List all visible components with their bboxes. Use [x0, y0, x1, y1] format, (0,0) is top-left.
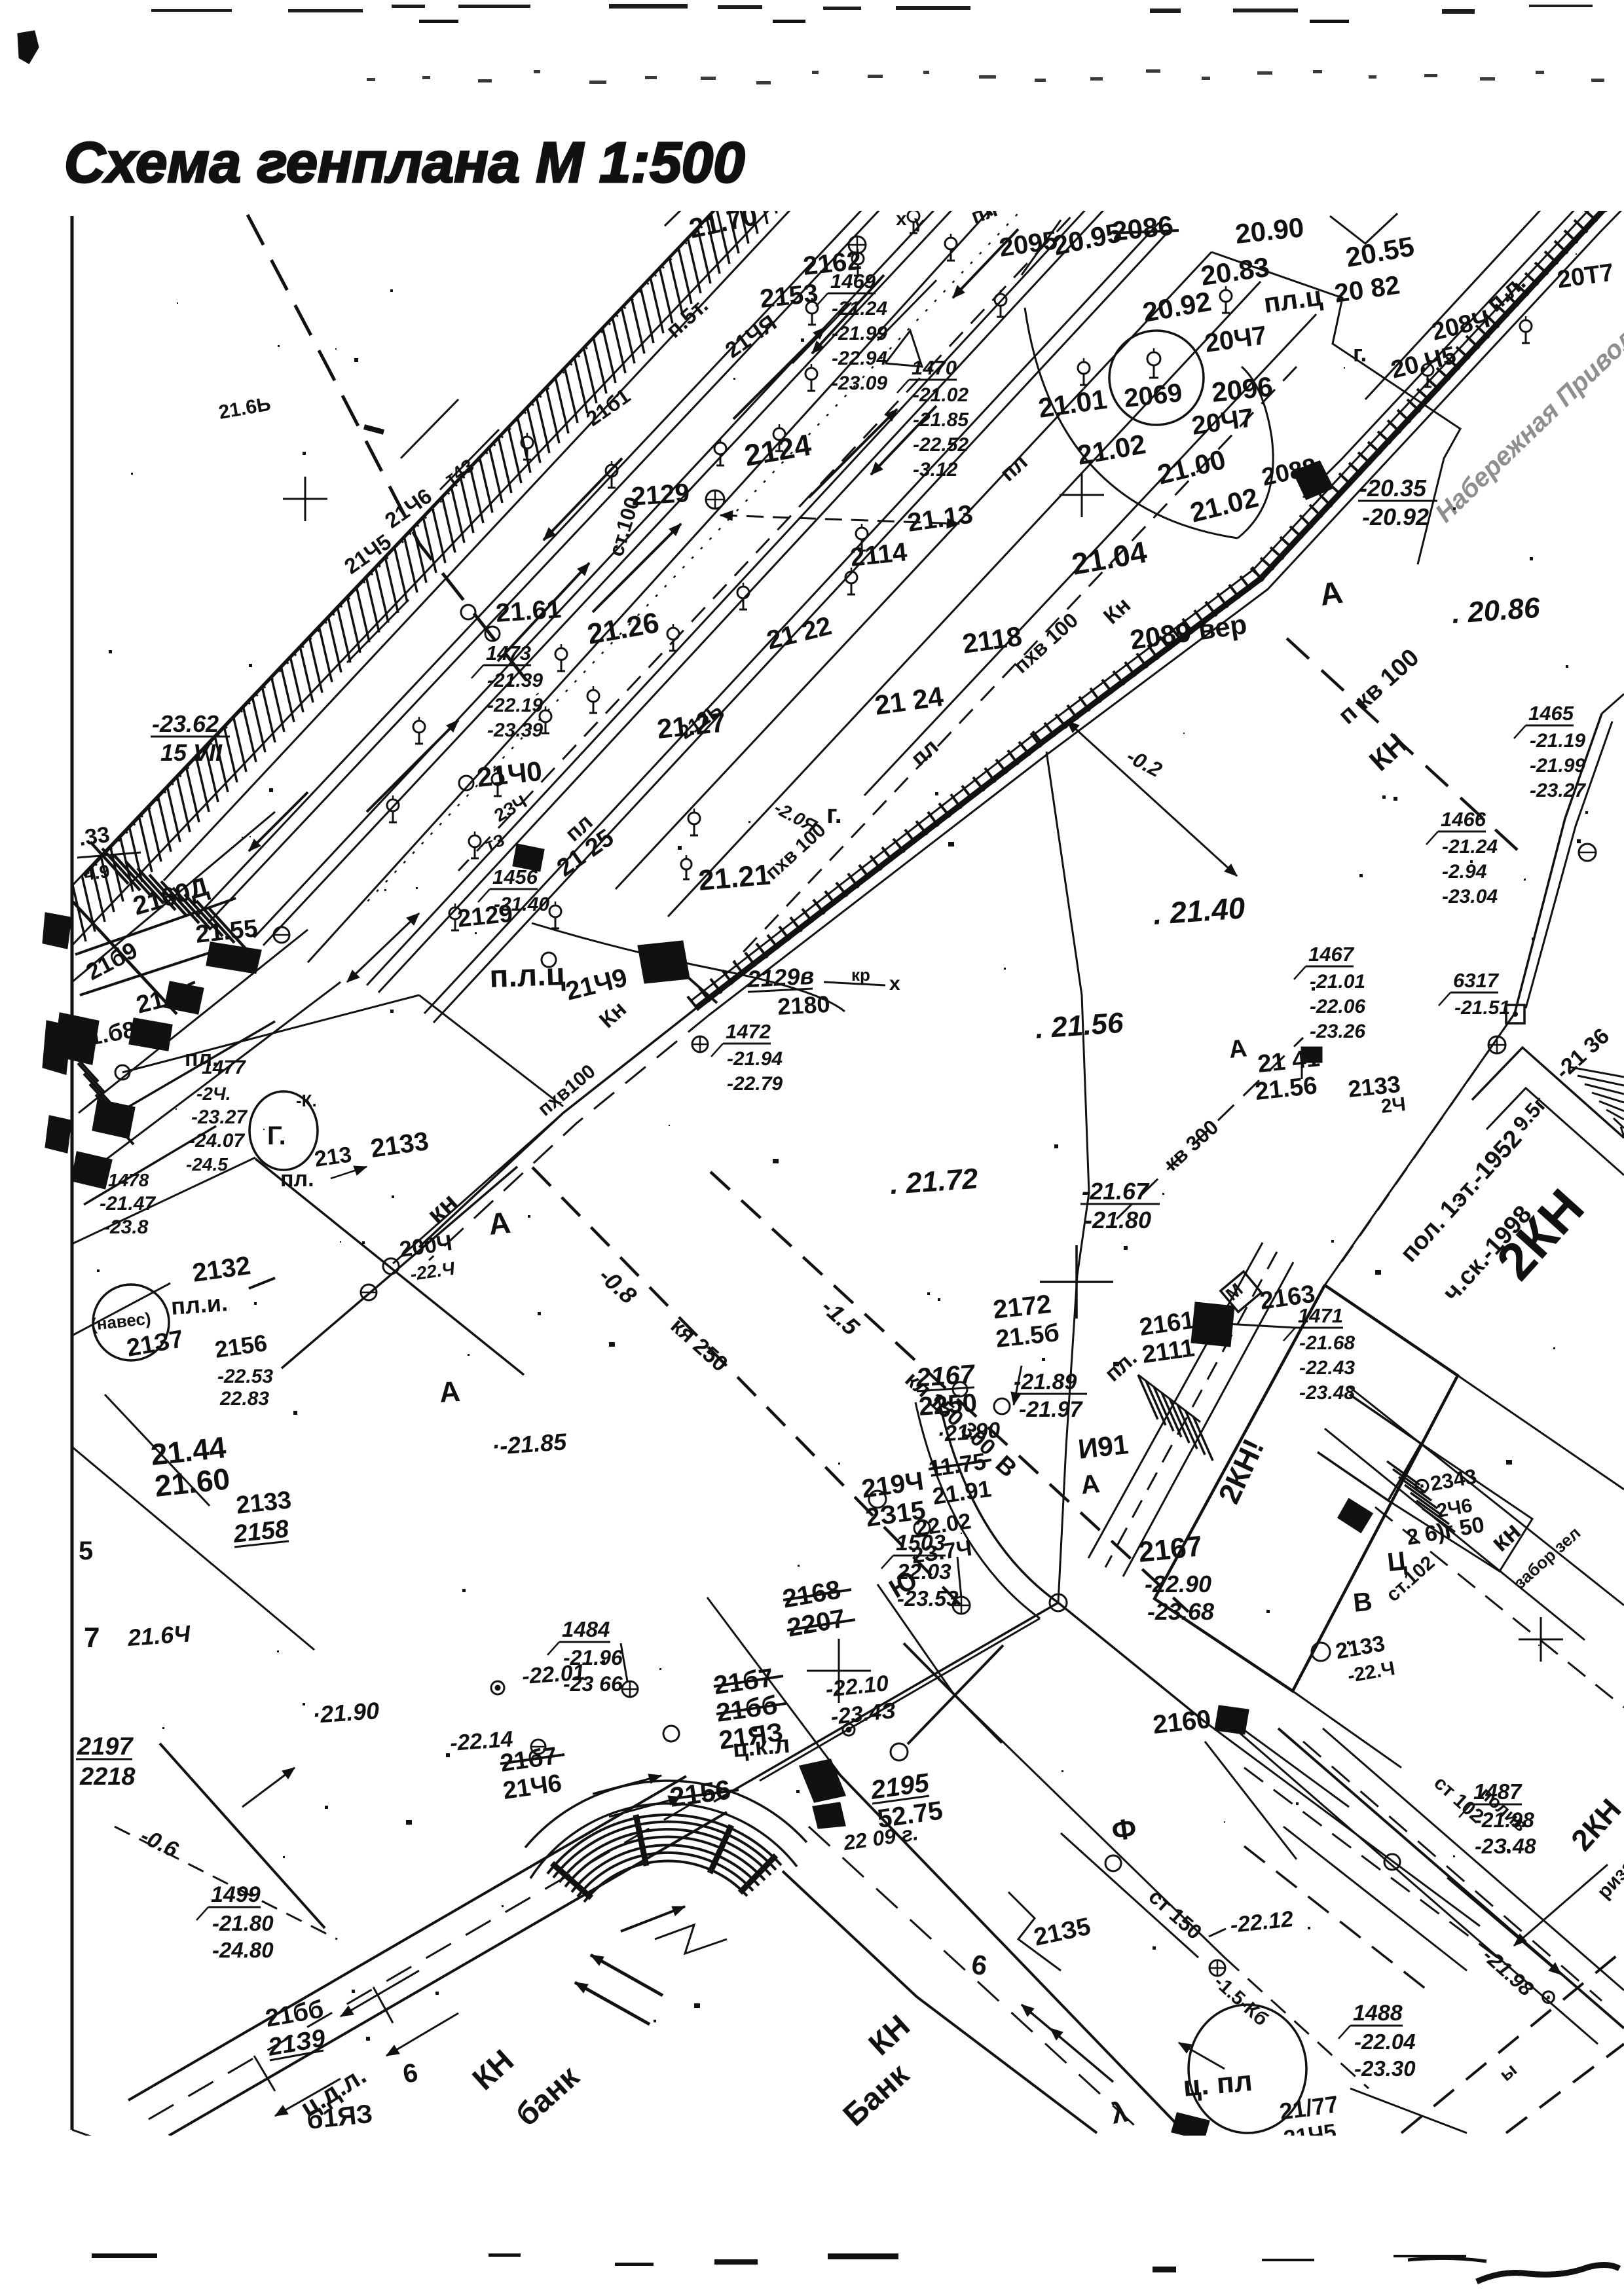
svg-text:-24.80: -24.80: [212, 1938, 274, 1962]
svg-text:-24.5: -24.5: [186, 1154, 228, 1175]
svg-text:1469: 1469: [830, 270, 876, 293]
svg-text:-21.80: -21.80: [1084, 1207, 1151, 1233]
svg-text:21.61: 21.61: [495, 594, 563, 628]
svg-text:-2З.48: -2З.48: [1475, 1834, 1536, 1858]
svg-text:кр: кр: [851, 965, 870, 985]
svg-text:-23.09: -23.09: [832, 373, 887, 394]
svg-text:2096: 2096: [1210, 371, 1274, 408]
svg-text:. 20.86: . 20.86: [1450, 592, 1541, 630]
svg-text:2218: 2218: [79, 1763, 136, 1791]
svg-text:. 21.40: . 21.40: [1152, 890, 1246, 931]
svg-text:·21.90: ·21.90: [312, 1697, 380, 1728]
svg-text:-21.80: -21.80: [212, 1911, 274, 1935]
svg-text:2197: 2197: [77, 1733, 134, 1760]
svg-text:-21.02: -21.02: [913, 384, 969, 406]
svg-text:1499: 1499: [211, 1882, 261, 1907]
svg-text:-22.19: -22.19: [487, 695, 543, 716]
svg-text:А: А: [487, 1205, 512, 1241]
svg-text:15 VII: 15 VII: [160, 739, 223, 766]
svg-text:2Ч: 2Ч: [1380, 1093, 1407, 1118]
svg-text:-23.26: -23.26: [1310, 1021, 1365, 1042]
svg-text:-3.12: -3.12: [913, 459, 958, 481]
svg-text:-21.97: -21.97: [1019, 1397, 1083, 1422]
svg-text:-24.07: -24.07: [189, 1130, 245, 1152]
svg-text:-21.39: -21.39: [487, 670, 543, 691]
svg-text:2129: 2129: [631, 479, 691, 511]
svg-text:-23.04: -23.04: [1442, 886, 1498, 907]
svg-text:г.: г.: [826, 800, 842, 829]
svg-text:5: 5: [79, 1537, 93, 1565]
svg-text:-22.90: -22.90: [1145, 1571, 1211, 1597]
svg-text:1488: 1488: [1353, 2001, 1403, 2026]
svg-text:-21.98: -21.98: [1475, 1808, 1534, 1832]
svg-text:6317: 6317: [1453, 969, 1500, 992]
svg-text:-22.04: -22.04: [1354, 2030, 1416, 2054]
svg-text:·-21.85: ·-21.85: [491, 1428, 568, 1460]
svg-text:-23.27: -23.27: [191, 1106, 248, 1128]
svg-text:2114: 2114: [849, 538, 909, 572]
svg-text:п.л.ц: п.л.ц: [489, 957, 566, 994]
svg-text:2180: 2180: [777, 991, 830, 1020]
svg-text:-22.06: -22.06: [1310, 996, 1365, 1017]
svg-text:Ф: Ф: [1110, 1812, 1139, 1848]
svg-text:-21.01: -21.01: [1310, 971, 1365, 993]
svg-text:Г.: Г.: [267, 1121, 286, 1150]
svg-text:-23.48: -23.48: [1299, 1382, 1355, 1404]
svg-text:1470: 1470: [912, 356, 957, 379]
svg-text:-22.94: -22.94: [832, 348, 887, 369]
svg-text:2172: 2172: [991, 1290, 1052, 1324]
svg-text:пл.и.: пл.и.: [170, 1289, 229, 1320]
svg-text:-23.27: -23.27: [1530, 780, 1586, 801]
svg-text:-2.94: -2.94: [1442, 861, 1487, 883]
svg-text:-21.47: -21.47: [100, 1193, 156, 1214]
svg-text:1484: 1484: [562, 1617, 610, 1641]
svg-text:-21.68: -21.68: [1299, 1332, 1355, 1354]
svg-text:2129в: 2129в: [746, 962, 815, 993]
svg-text:-22.43: -22.43: [1299, 1357, 1355, 1379]
svg-text:-23.68: -23.68: [1147, 1598, 1214, 1625]
svg-text:х: х: [896, 208, 907, 230]
svg-text:4.9: 4.9: [83, 861, 111, 884]
svg-text:-21.99: -21.99: [832, 323, 887, 344]
svg-text:-21.24: -21.24: [832, 298, 887, 319]
svg-text:22.83: 22.83: [219, 1388, 269, 1410]
svg-text:.33: .33: [77, 822, 111, 851]
svg-text:-21.40: -21.40: [494, 894, 549, 915]
svg-text:-21.85: -21.85: [913, 409, 969, 431]
svg-text:пл.: пл.: [280, 1167, 314, 1192]
svg-text:1471: 1471: [1298, 1304, 1343, 1327]
svg-text:х: х: [889, 973, 900, 994]
svg-text:21.6Ч: 21.6Ч: [126, 1620, 193, 1651]
svg-text:⊙: ⊙: [1540, 1986, 1557, 2008]
svg-text:1487: 1487: [1473, 1779, 1522, 1804]
svg-text:1466: 1466: [1441, 808, 1486, 831]
svg-text:-22.53: -22.53: [217, 1366, 273, 1387]
svg-text:7: 7: [84, 1622, 100, 1654]
svg-text:г.: г.: [1353, 340, 1367, 367]
svg-text:2069: 2069: [1122, 378, 1183, 413]
svg-text:21.21: 21.21: [697, 859, 772, 897]
svg-text:-23.30: -23.30: [1354, 2056, 1416, 2081]
svg-text:1456: 1456: [492, 866, 538, 888]
svg-text:-21.19: -21.19: [1530, 730, 1585, 752]
svg-text:-21.51: -21.51: [1454, 997, 1510, 1019]
svg-text:-21.94: -21.94: [727, 1048, 783, 1070]
svg-text:А: А: [1079, 1469, 1101, 1500]
svg-text:-22.01: -22.01: [521, 1660, 586, 1689]
svg-text:-23.39: -23.39: [487, 720, 543, 741]
svg-text:2133: 2133: [235, 1486, 293, 1520]
svg-text:2250: 2250: [918, 1389, 978, 1421]
svg-text:-22.79: -22.79: [727, 1073, 783, 1095]
svg-text:-21.99: -21.99: [1530, 755, 1585, 776]
svg-text:1478: 1478: [108, 1170, 149, 1190]
svg-text:. 21.56: . 21.56: [1034, 1007, 1124, 1045]
svg-text:А: А: [1318, 575, 1345, 613]
svg-text:В: В: [1352, 1587, 1373, 1618]
svg-text:2160: 2160: [1151, 1705, 1212, 1740]
svg-text:-К.: -К.: [296, 1091, 317, 1110]
svg-text:-2Ч.: -2Ч.: [196, 1084, 231, 1104]
svg-text:И91: И91: [1077, 1429, 1130, 1465]
svg-text:2167: 2167: [1137, 1530, 1204, 1569]
svg-text:А: А: [1228, 1034, 1249, 1064]
svg-text:Схема генплана М 1:500: Схема генплана М 1:500: [64, 131, 745, 194]
svg-text:1465: 1465: [1528, 702, 1574, 725]
svg-text:А: А: [438, 1376, 461, 1409]
svg-text:1477: 1477: [202, 1057, 246, 1078]
svg-text:. 21.72: . 21.72: [889, 1163, 979, 1201]
svg-text:1472: 1472: [726, 1020, 771, 1043]
svg-text:-21.89: -21.89: [1014, 1370, 1077, 1394]
svg-text:-21.67: -21.67: [1082, 1178, 1150, 1205]
svg-text:2153: 2153: [758, 279, 819, 314]
svg-text:ц. пл: ц. пл: [1182, 2065, 1254, 2103]
svg-text:-21.24: -21.24: [1442, 836, 1498, 858]
svg-text:-23.8: -23.8: [103, 1216, 149, 1238]
svg-text:-22.52: -22.52: [913, 434, 969, 456]
svg-text:2086: 2086: [1111, 210, 1175, 247]
svg-text:1467: 1467: [1308, 943, 1355, 966]
svg-text:-23.62: -23.62: [152, 710, 219, 737]
svg-text:-20.92: -20.92: [1362, 503, 1429, 530]
svg-text:1473: 1473: [486, 642, 531, 665]
svg-text:-20.35: -20.35: [1359, 475, 1427, 501]
svg-text:213: 213: [313, 1142, 353, 1172]
